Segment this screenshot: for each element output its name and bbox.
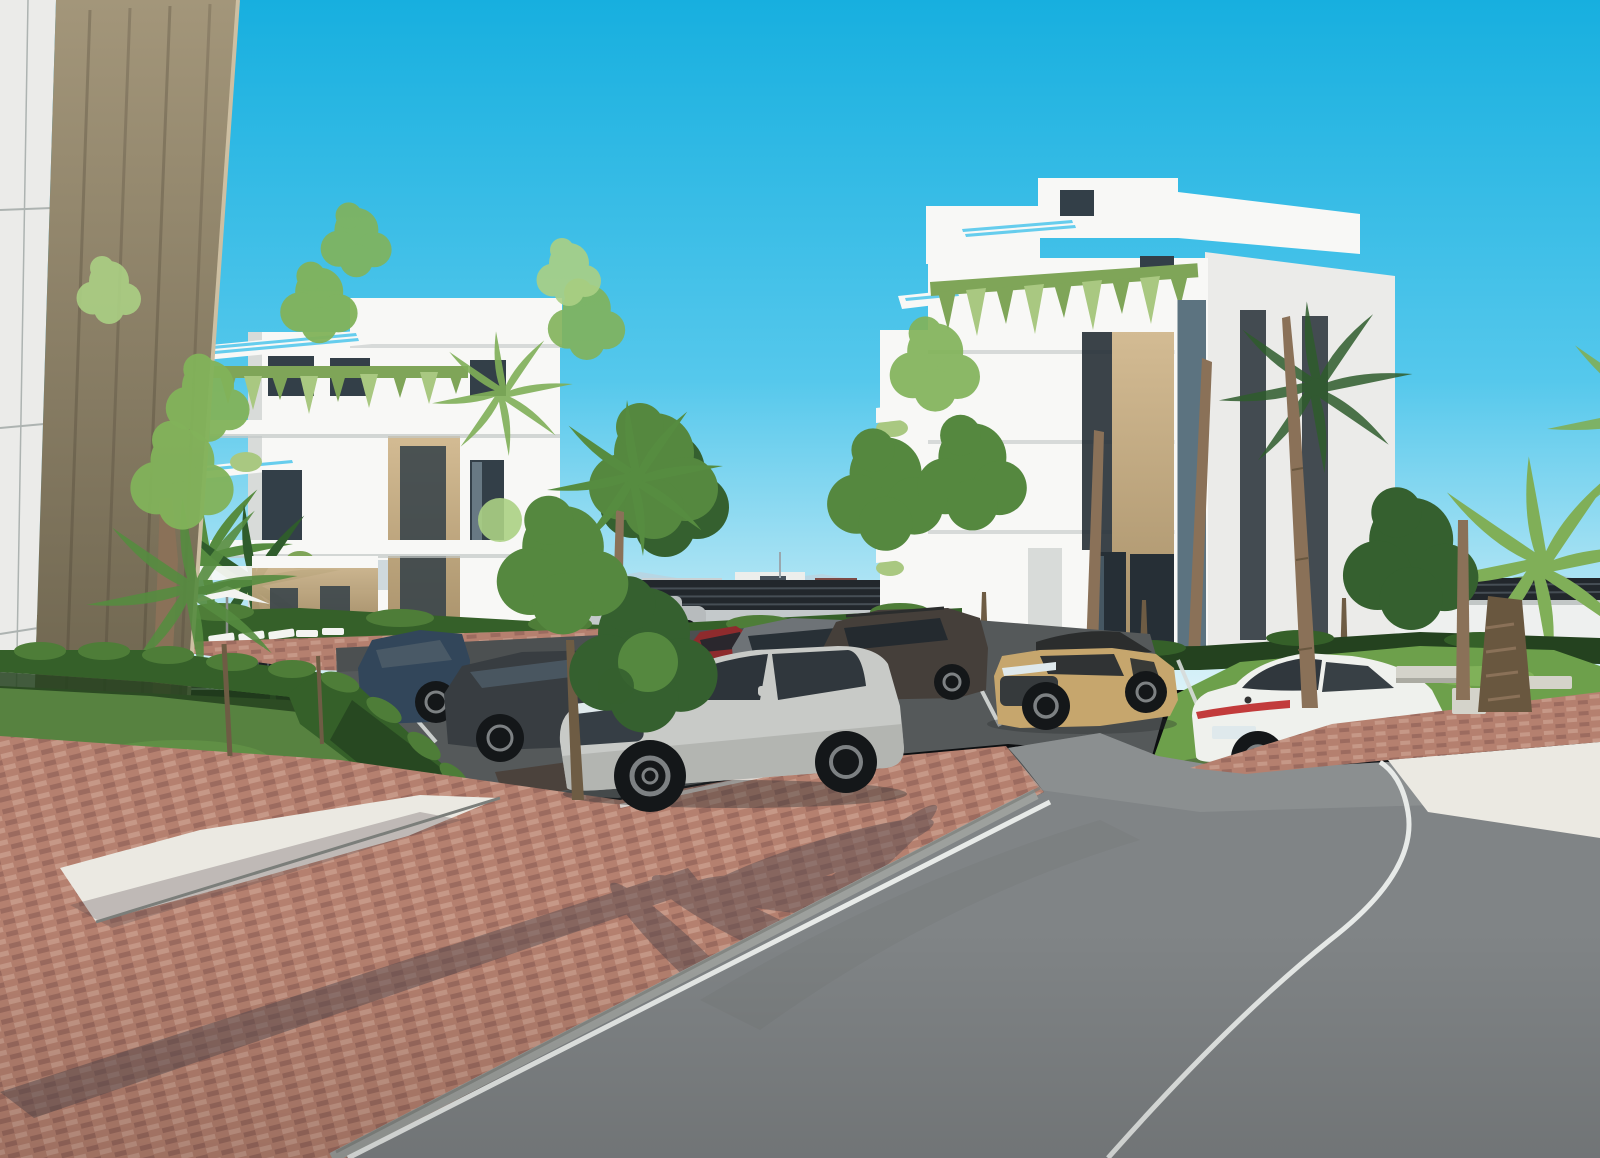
vignette xyxy=(0,930,1600,1158)
sun-lounger xyxy=(322,628,344,635)
brand-emblem xyxy=(1245,697,1252,704)
render-scene: Residential complex exterior — 3D archit… xyxy=(0,0,1600,1158)
wing-mirror xyxy=(758,686,774,696)
architectural-render: Residential complex exterior — 3D archit… xyxy=(0,0,1600,1158)
sun-lounger xyxy=(296,630,318,637)
